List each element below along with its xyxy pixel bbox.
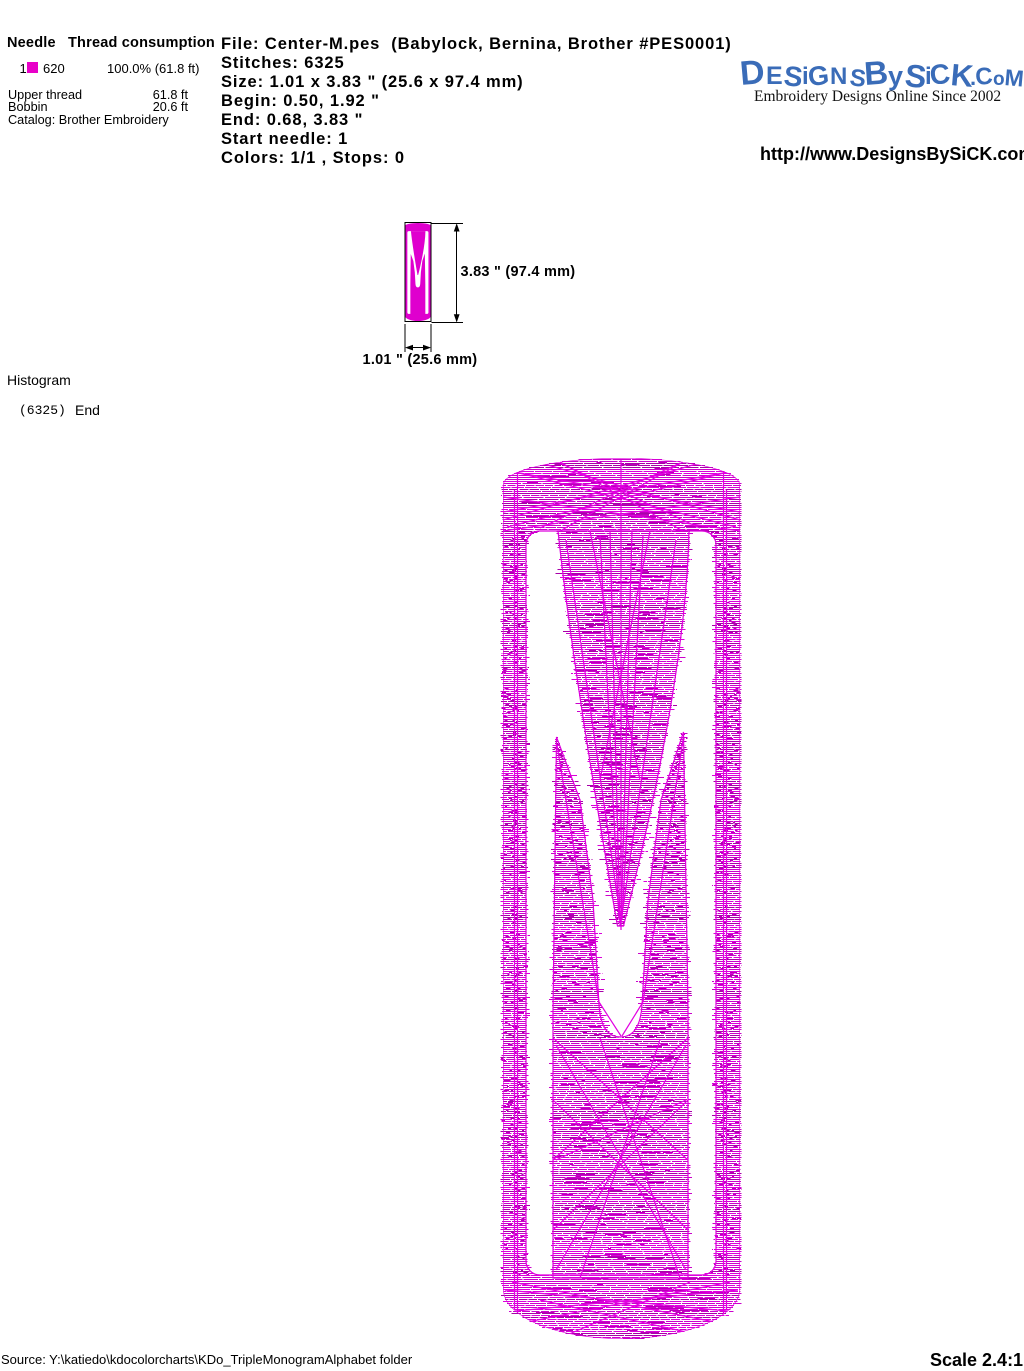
svg-text:E: E: [766, 62, 783, 90]
svg-text:M: M: [1004, 64, 1024, 92]
svg-text:C: C: [928, 58, 952, 91]
svg-text:y: y: [888, 61, 903, 91]
svg-text:N: N: [830, 63, 847, 90]
svg-text:B: B: [863, 53, 889, 92]
